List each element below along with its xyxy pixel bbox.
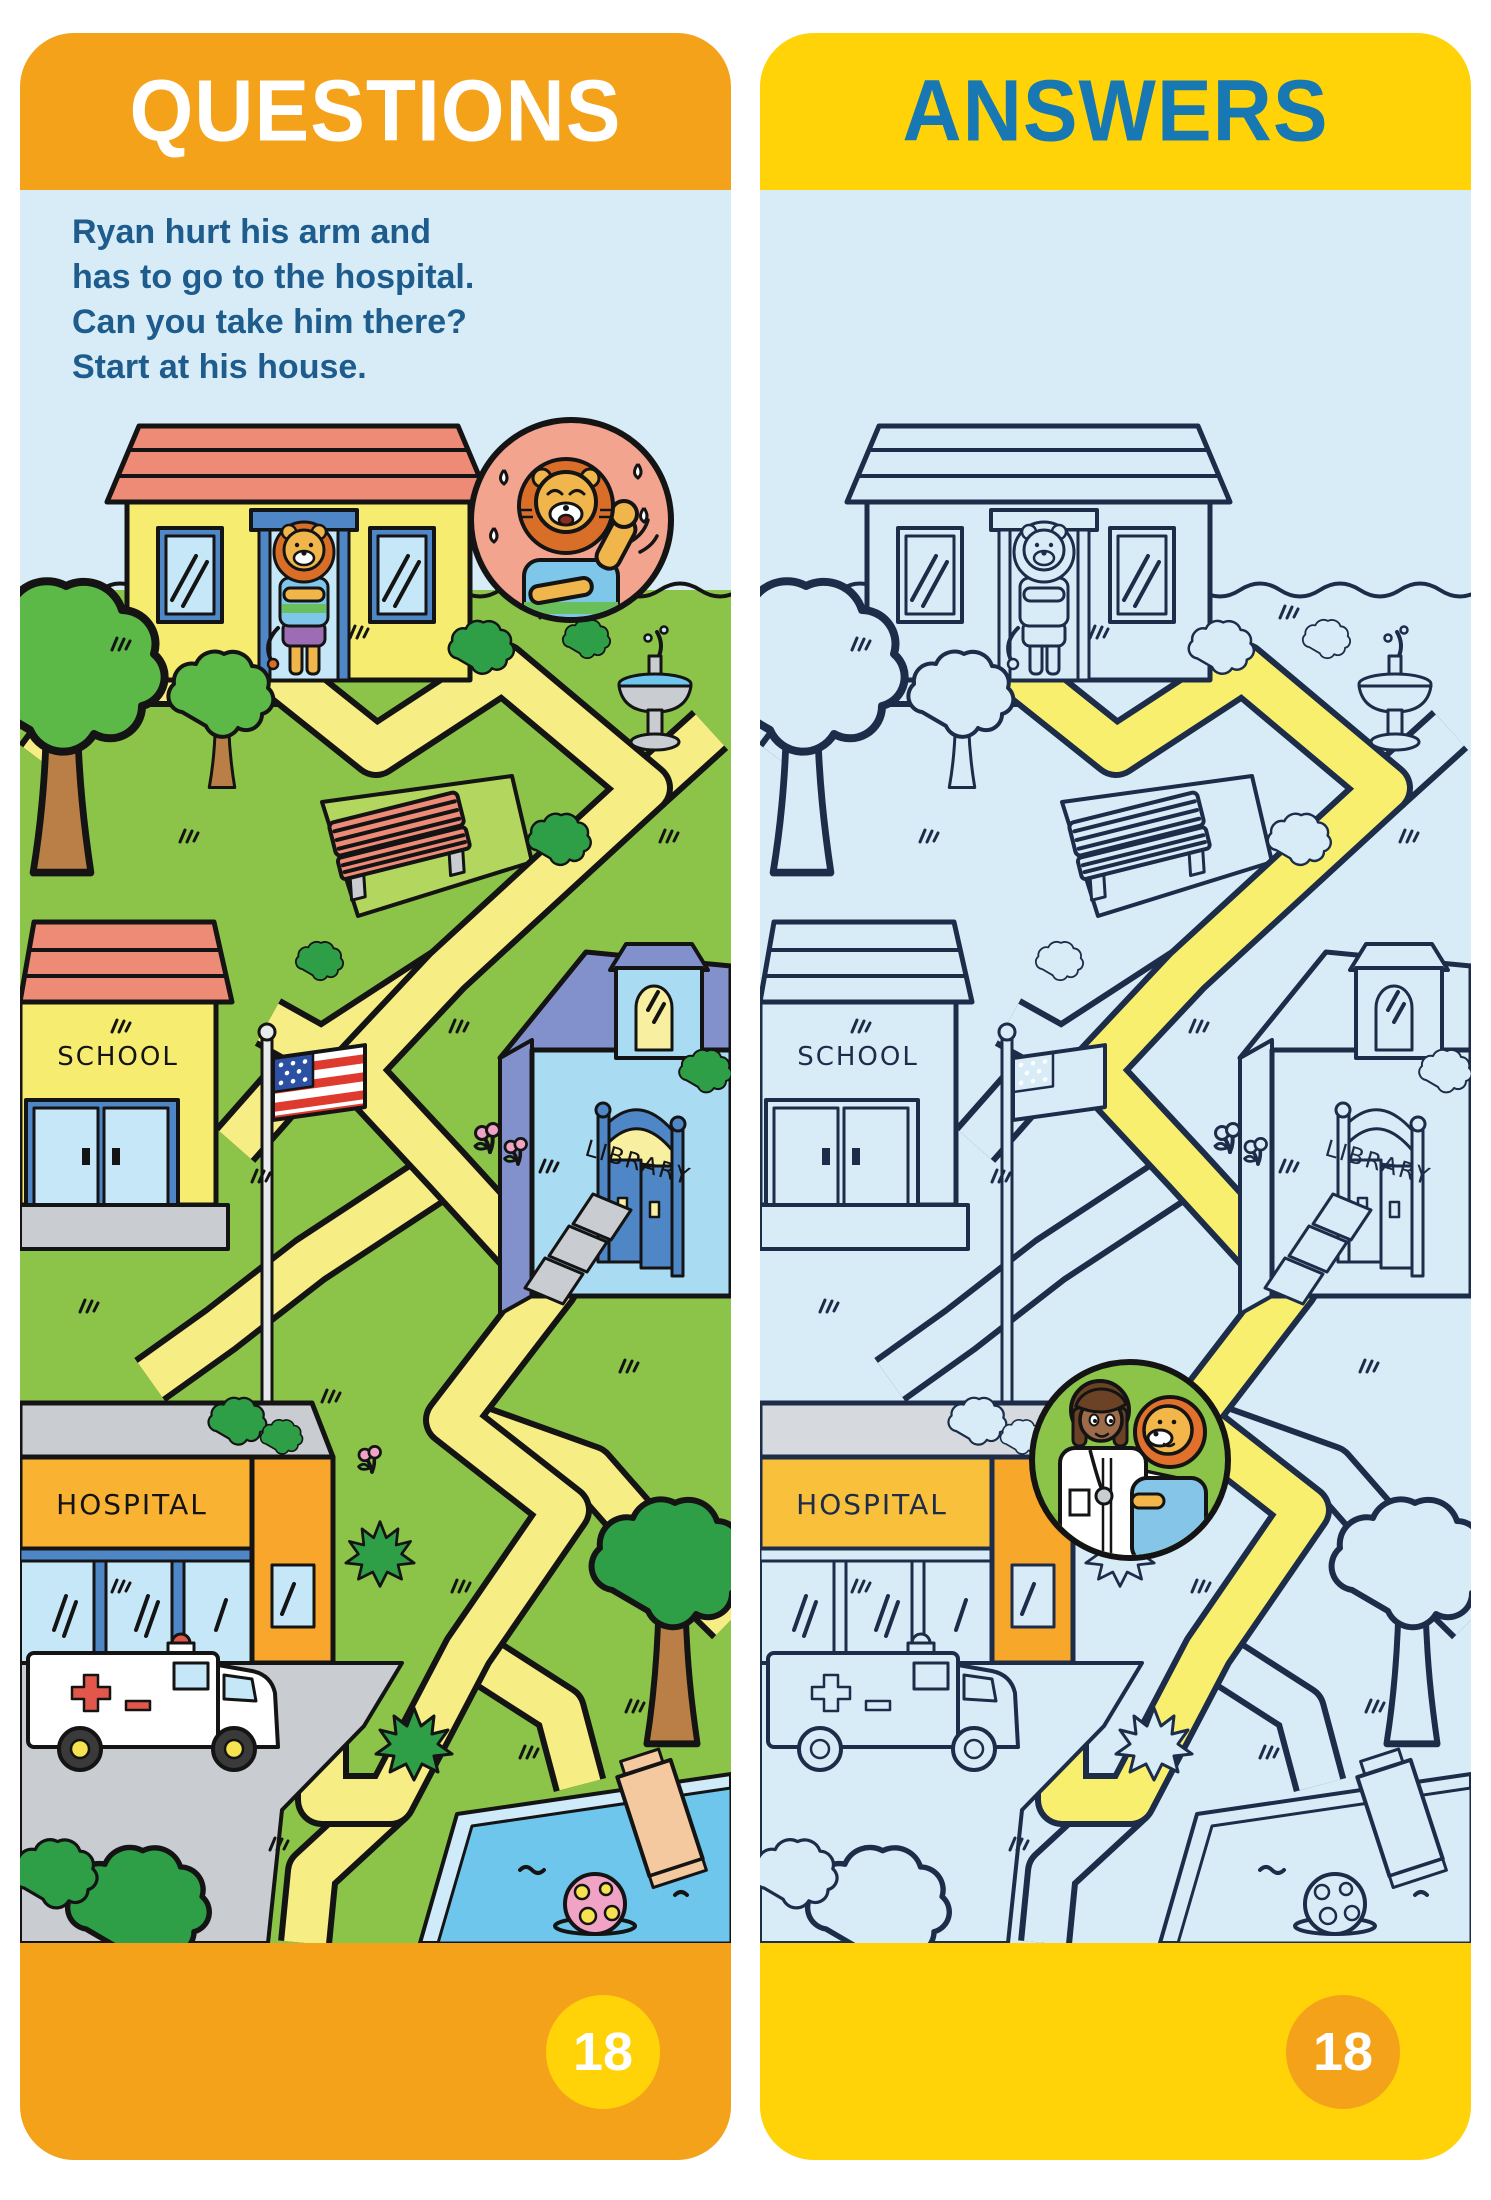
questions-maze-illustration: SCHOOL LIBRARY HOSPITAL bbox=[20, 410, 731, 1943]
hospital-label: HOSPITAL bbox=[796, 1488, 948, 1521]
questions-header: QUESTIONS bbox=[20, 33, 731, 190]
page-number-badge: 18 bbox=[546, 1995, 660, 2109]
answers-header: ANSWERS bbox=[760, 33, 1471, 190]
page-number: 18 bbox=[1313, 2021, 1373, 2083]
answers-panel: ANSWERS SCHOOL LIBRARY HOSPITAL bbox=[760, 33, 1471, 2160]
instruction-line: Start at his house. bbox=[72, 345, 701, 390]
questions-body: Ryan hurt his arm and has to go to the h… bbox=[20, 190, 731, 1943]
answers-body: SCHOOL LIBRARY HOSPITAL bbox=[760, 190, 1471, 1943]
answers-title: ANSWERS bbox=[902, 62, 1328, 162]
page-number-badge: 18 bbox=[1286, 1995, 1400, 2109]
doctor-lion-inset bbox=[1032, 1362, 1228, 1562]
page-number: 18 bbox=[573, 2021, 633, 2083]
school-label: SCHOOL bbox=[797, 1042, 919, 1072]
activity-book-spread: QUESTIONS Ryan hurt his arm and has to g… bbox=[0, 0, 1491, 2200]
puzzle-instructions: Ryan hurt his arm and has to go to the h… bbox=[72, 210, 701, 390]
answers-footer: 18 bbox=[760, 1943, 1471, 2160]
instruction-line: has to go to the hospital. bbox=[72, 255, 701, 300]
answers-maze-illustration: SCHOOL LIBRARY HOSPITAL bbox=[760, 410, 1471, 1943]
school-label: SCHOOL bbox=[57, 1042, 179, 1072]
questions-title: QUESTIONS bbox=[130, 62, 622, 162]
instruction-line: Ryan hurt his arm and bbox=[72, 210, 701, 255]
questions-panel: QUESTIONS Ryan hurt his arm and has to g… bbox=[20, 33, 731, 2160]
questions-footer: 18 bbox=[20, 1943, 731, 2160]
hospital-label: HOSPITAL bbox=[56, 1488, 208, 1521]
instruction-line: Can you take him there? bbox=[72, 300, 701, 345]
